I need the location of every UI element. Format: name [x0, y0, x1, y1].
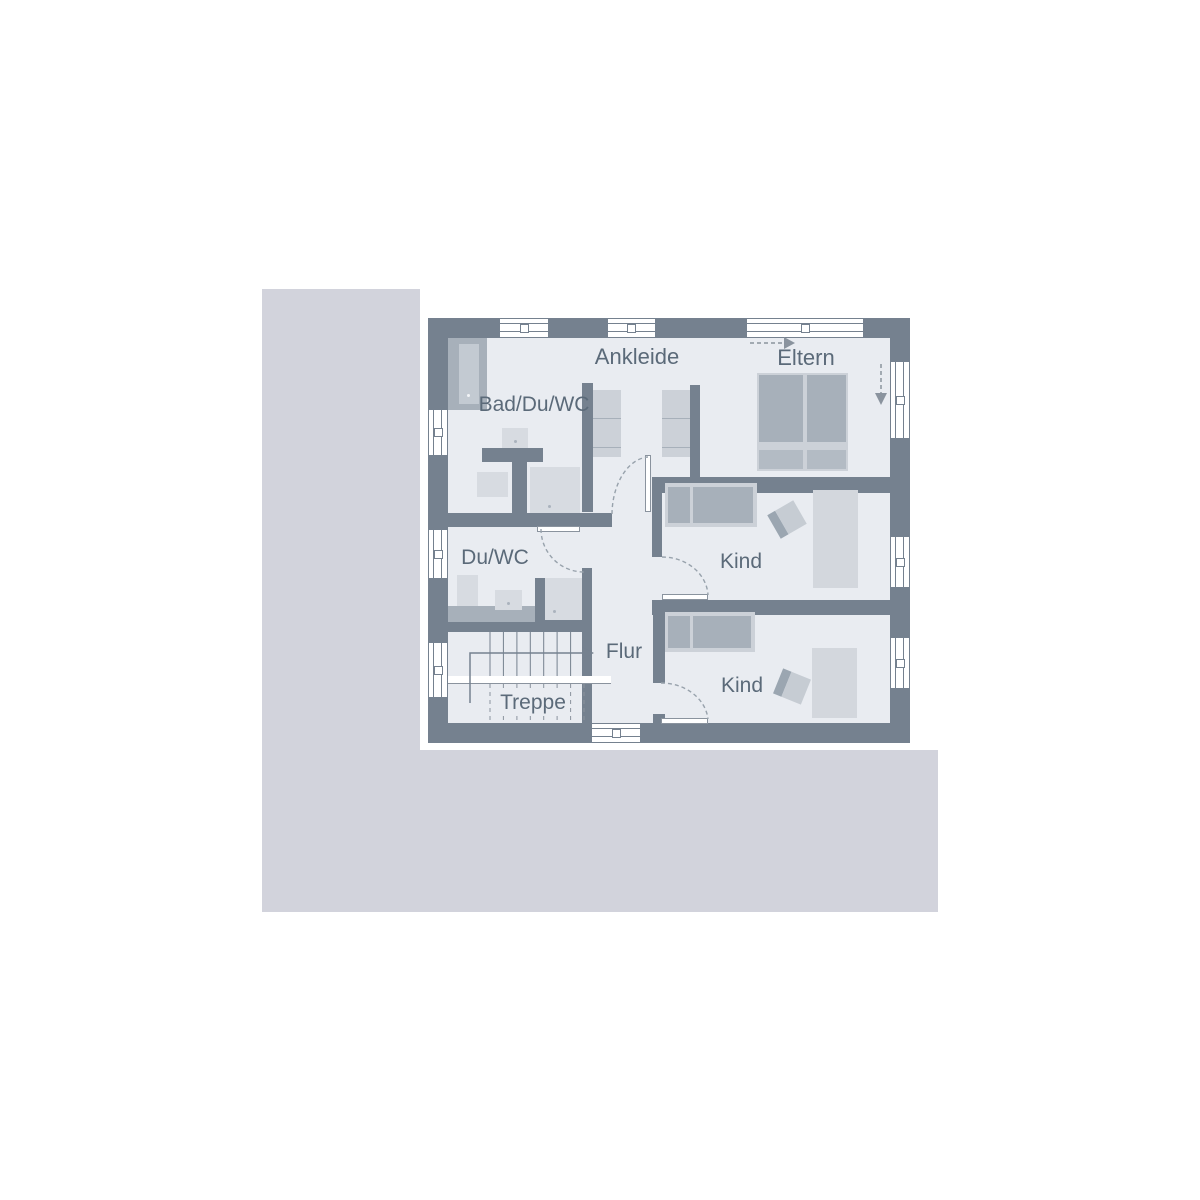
door-leaf-kind1	[662, 594, 708, 600]
window-top-3	[747, 319, 863, 337]
wall-flur-kind1	[652, 477, 662, 557]
wall-wardrobe-partition	[690, 385, 700, 477]
wardrobe-1	[593, 390, 621, 457]
window-right-kind2	[891, 638, 909, 688]
door-leaf-ankleide	[645, 455, 651, 512]
wall-shower-duwc	[535, 578, 545, 622]
wall-flur-west	[582, 568, 592, 723]
room-label-duwc: Du/WC	[461, 546, 529, 570]
room-label-kind1: Kind	[720, 550, 762, 574]
kind1-bed	[665, 483, 757, 527]
window-top-1	[500, 319, 548, 337]
double-bed	[757, 373, 848, 471]
kind2-desk	[812, 648, 857, 718]
floor-plan: Ankleide Eltern Bad/Du/WC Du/WC Flur Tre…	[428, 318, 910, 743]
bath-shower	[530, 467, 580, 513]
room-label-kind2: Kind	[721, 674, 763, 698]
duwc-toilet	[495, 590, 522, 610]
door-leaf-kind2	[661, 718, 708, 724]
duwc-shower	[545, 578, 582, 620]
room-label-treppe: Treppe	[497, 691, 569, 715]
window-right-eltern	[891, 362, 909, 438]
window-left-duwc	[429, 530, 447, 578]
room-label-eltern: Eltern	[777, 345, 834, 371]
wardrobe-2	[662, 390, 690, 457]
site-area-bottom	[262, 750, 938, 912]
window-left-treppe	[429, 643, 447, 697]
door-leaf-duwc	[537, 526, 580, 532]
wall-bath-south	[448, 513, 612, 527]
kind2-bed	[665, 612, 755, 652]
window-left-bad	[429, 410, 447, 455]
room-label-flur: Flur	[606, 640, 642, 664]
stair-cut-line	[448, 676, 611, 684]
wall-flur-kind2	[653, 600, 665, 683]
window-bottom-flur	[592, 724, 640, 742]
window-right-kind1	[891, 537, 909, 587]
kind1-desk	[813, 490, 858, 588]
bath-counter	[482, 448, 543, 462]
bath-toilet	[477, 472, 508, 497]
bath-sink	[502, 428, 528, 448]
window-top-2	[608, 319, 655, 337]
duwc-sink	[457, 575, 478, 606]
wall-bath-stub	[512, 462, 527, 513]
room-label-ankleide: Ankleide	[595, 344, 679, 370]
room-label-bad: Bad/Du/WC	[479, 393, 590, 417]
